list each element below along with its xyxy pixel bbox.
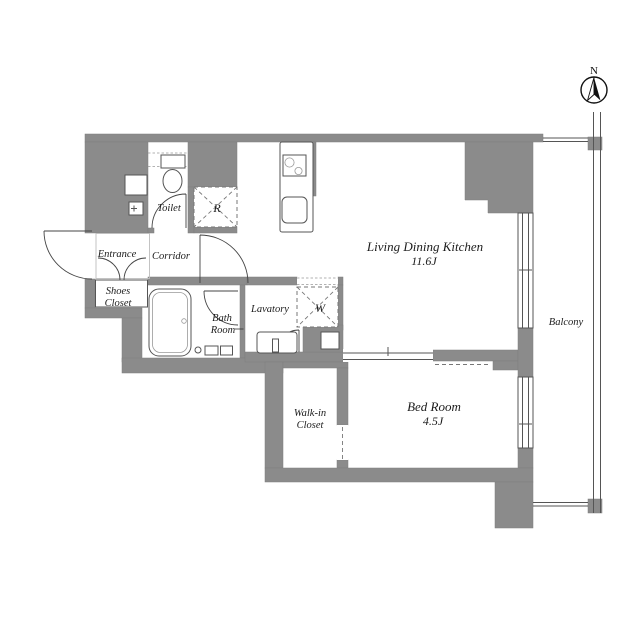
toilet-bowl <box>163 170 182 193</box>
balcony-post-bottom <box>588 499 602 513</box>
toilet-tank <box>161 155 185 168</box>
room-label-bath-line1: Bath <box>212 313 232 324</box>
toilet-fixtures <box>148 153 188 193</box>
wall-bottom <box>265 468 533 482</box>
wall-ldk-bedroom <box>433 350 518 361</box>
room-size-ldk: 11.6J <box>411 254 437 268</box>
balcony-rail-right <box>594 112 601 513</box>
bath-tap-icon <box>195 347 201 353</box>
wall-entrance-lower <box>85 279 95 308</box>
room-label-balcony: Balcony <box>549 317 584 328</box>
room-label-bedroom: Bed Room <box>407 399 461 414</box>
room-label-corridor: Corridor <box>152 251 191 262</box>
bath-counter-b <box>221 346 233 355</box>
entrance-door-arc <box>44 231 92 279</box>
wall-above-refrigerator <box>188 142 237 187</box>
room-label-toilet: Toilet <box>157 203 182 214</box>
wall-shoes-bottom <box>85 308 142 318</box>
room-label-walkin-line2: Closet <box>297 420 325 431</box>
kitchen-fixtures <box>280 142 313 232</box>
washing-machine-label: W <box>315 301 326 315</box>
wall-top <box>85 134 543 142</box>
wall-closet-left-column <box>265 362 283 468</box>
lavatory-fixtures <box>257 332 297 353</box>
bathtub <box>149 289 191 356</box>
balcony-railing <box>533 112 601 513</box>
wall-bedroom-right-low <box>518 448 533 468</box>
floor-plan: N Toilet Entrance Corridor Shoes Closet … <box>0 0 640 640</box>
balcony-rail-top <box>543 138 588 142</box>
room-label-shoes-closet-line2: Closet <box>105 298 133 309</box>
wall-closet-bedroom-a <box>337 368 348 425</box>
balcony-rail-bottom <box>533 503 588 507</box>
room-label-ldk: Living Dining Kitchen <box>366 239 483 254</box>
room-label-entrance: Entrance <box>97 249 137 260</box>
room-label-walkin-line1: Walk-in <box>294 408 326 419</box>
bedroom-window <box>518 377 533 448</box>
north-label: N <box>590 65 598 77</box>
bath-counter-a <box>205 346 218 355</box>
meter-box-niche <box>125 175 147 195</box>
shoes-closet-door-arcs <box>98 258 146 280</box>
wall-closet-top <box>283 362 348 368</box>
wall-bath-lavatory <box>240 285 245 358</box>
floor-plan-canvas: N Toilet Entrance Corridor Shoes Closet … <box>0 0 640 640</box>
compass: N <box>581 65 607 103</box>
wall-corridor-bath <box>148 277 247 285</box>
wall-closet-bedroom-b <box>337 460 348 468</box>
wall-washer-right <box>338 285 343 330</box>
wall-toilet-bottom-stub <box>148 228 154 233</box>
wall-between-windows <box>518 328 533 377</box>
wall-top-right-pillar <box>465 142 533 213</box>
room-label-lavatory: Lavatory <box>250 304 289 315</box>
room-label-shoes-closet-line1: Shoes <box>106 286 131 297</box>
wall-toilet-right <box>188 187 194 233</box>
corridor-ldk-door-arc <box>200 235 248 283</box>
refrigerator-label: R <box>212 201 221 215</box>
wall-southwest-column <box>122 318 142 362</box>
kitchen-sink <box>282 197 307 223</box>
washbasin-faucet-icon <box>273 339 279 352</box>
wall-under-refrigerator <box>194 227 237 233</box>
wall-ldk-bedroom-step <box>493 361 518 370</box>
room-label-bath-line2: Room <box>210 325 236 336</box>
balcony-post-top <box>588 137 602 150</box>
wall-lavatory-top <box>247 277 297 285</box>
wall-bottom-right-stub <box>495 482 533 528</box>
lavatory-niche <box>321 332 339 349</box>
room-size-bedroom: 4.5J <box>423 414 444 428</box>
wall-lavatory-top-b <box>338 277 343 285</box>
